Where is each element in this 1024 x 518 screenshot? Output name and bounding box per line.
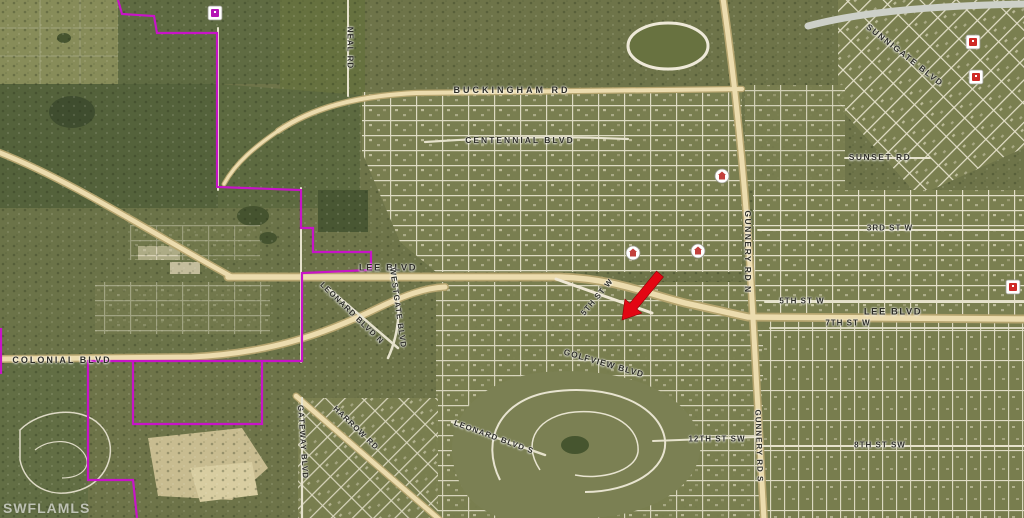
aerial-map[interactable]: BUCKINGHAM RDCENTENNIAL BLVDNEAL RDLEE B…: [0, 0, 1024, 518]
map-imagery: [0, 0, 1024, 518]
red-box-icon: [969, 70, 983, 84]
purple-box-icon: [208, 6, 222, 20]
red-box-icon: [966, 35, 980, 49]
red-circle-icon: [626, 246, 640, 260]
watermark: SWFLAMLS: [3, 500, 90, 516]
red-circle-icon: [691, 244, 705, 258]
red-box-icon: [1006, 280, 1020, 294]
red-circle-icon: [715, 169, 729, 183]
